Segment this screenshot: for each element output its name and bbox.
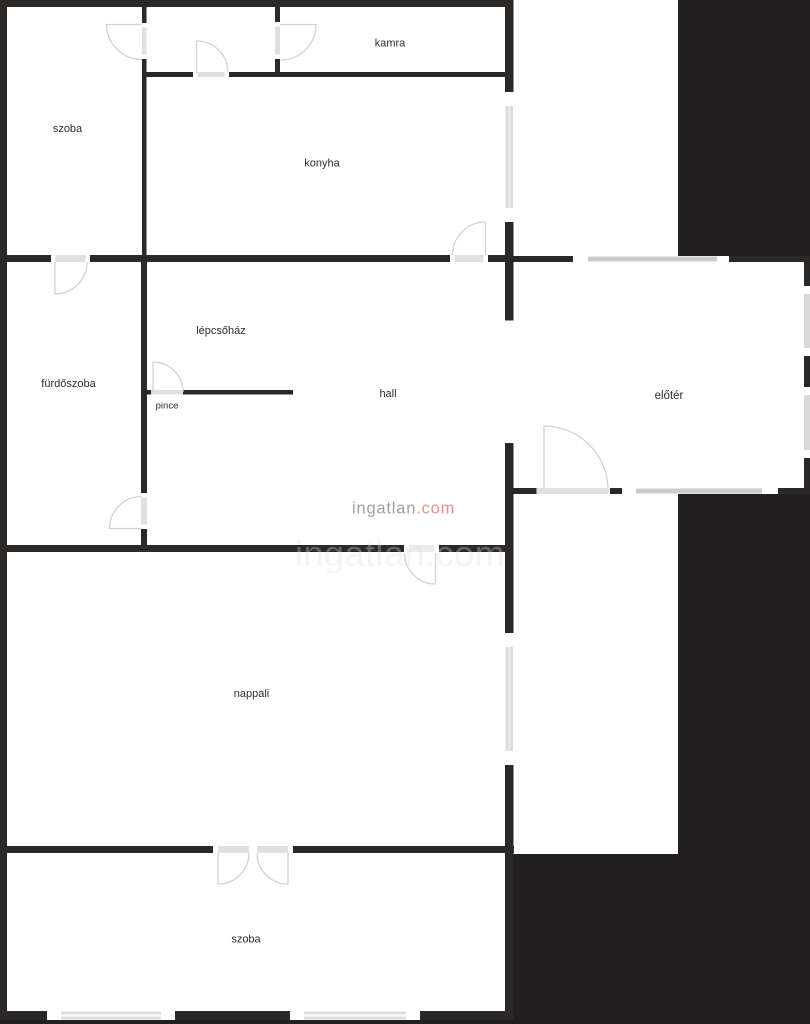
svg-text:szoba: szoba	[53, 123, 83, 135]
svg-text:ingatlan.com: ingatlan.com	[295, 533, 505, 574]
svg-text:szoba: szoba	[231, 934, 261, 946]
svg-text:kamra: kamra	[375, 38, 406, 50]
svg-text:konyha: konyha	[304, 158, 340, 170]
svg-text:ingatlan.com: ingatlan.com	[352, 500, 455, 518]
svg-text:hall: hall	[379, 388, 396, 400]
svg-text:pince: pince	[156, 401, 179, 412]
svg-text:előtér: előtér	[655, 390, 684, 402]
svg-text:fürdőszoba: fürdőszoba	[41, 378, 96, 390]
svg-text:nappali: nappali	[234, 688, 269, 700]
svg-text:lépcsőház: lépcsőház	[196, 325, 246, 337]
